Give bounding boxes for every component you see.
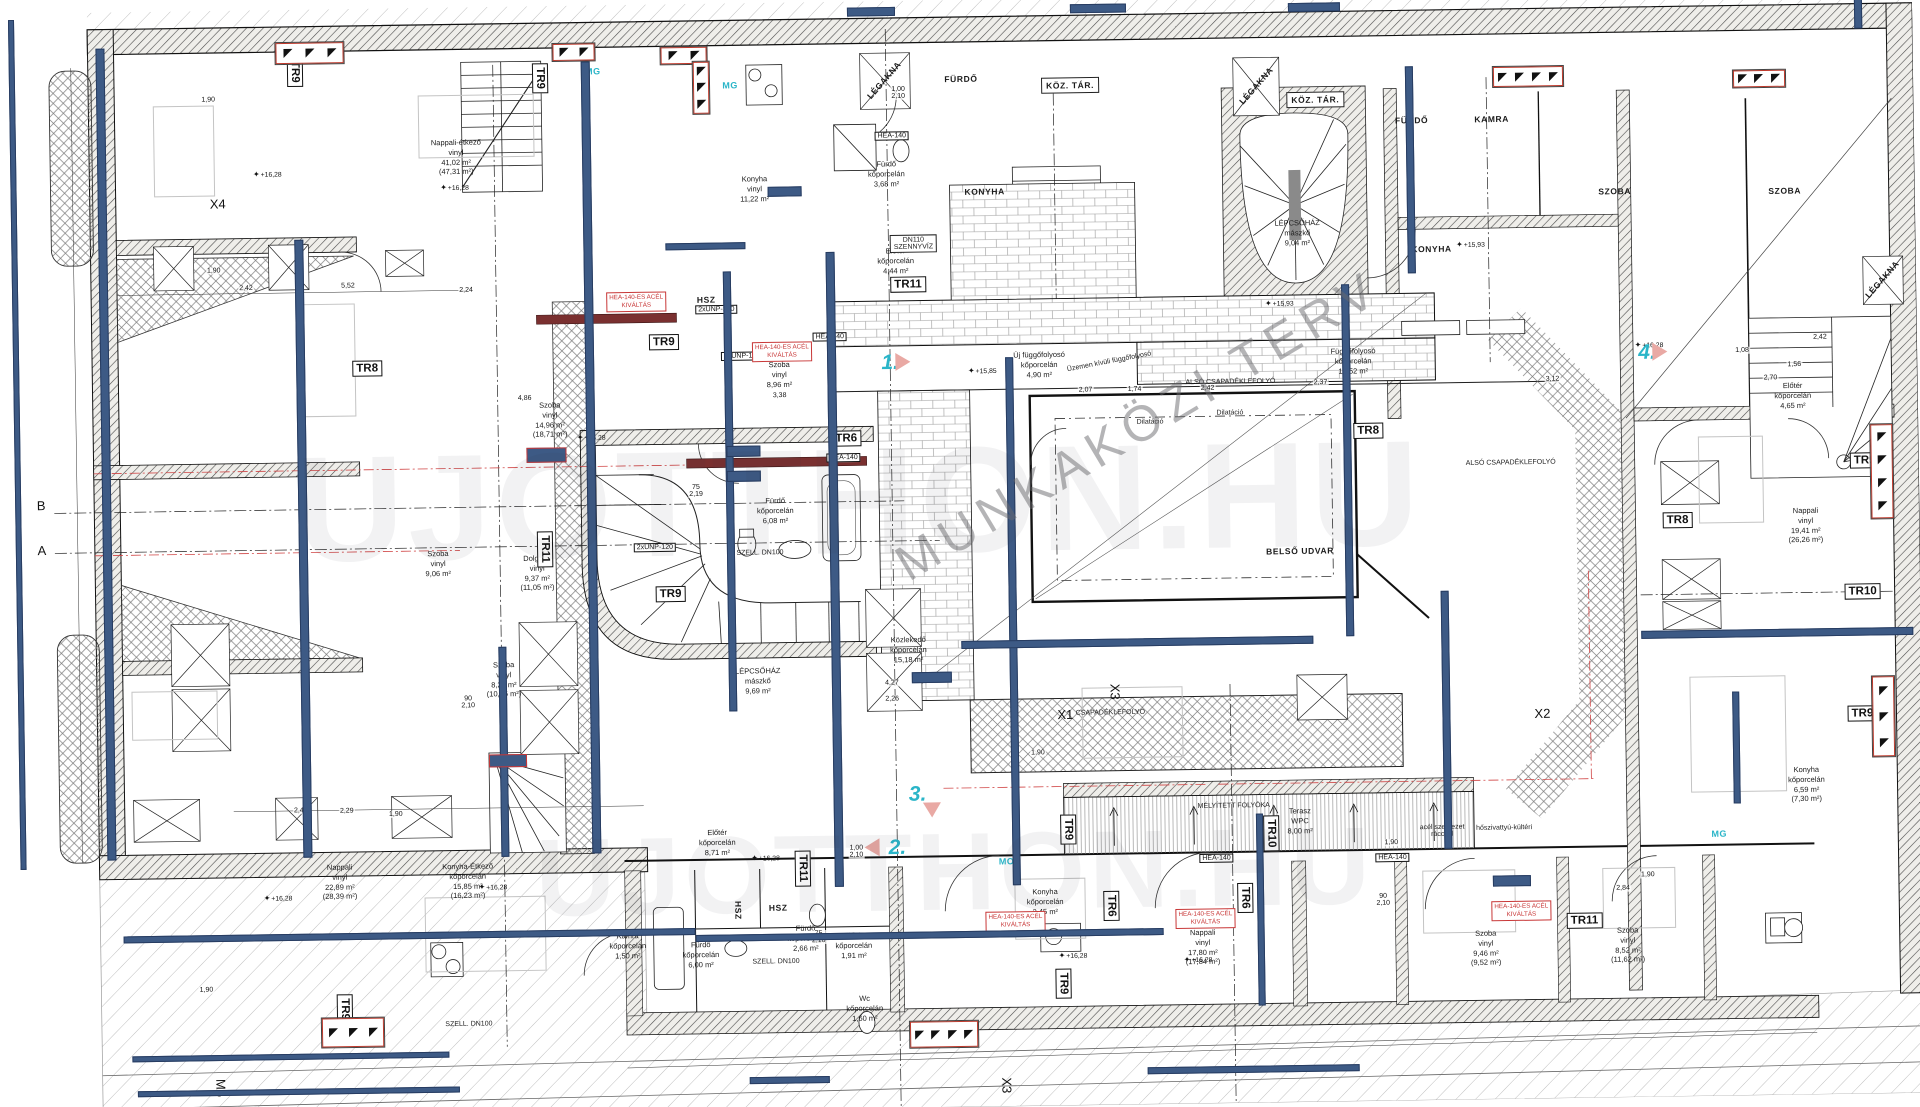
tr-tag: TR9 [531,63,548,93]
steel-beam [8,20,27,870]
glazing-triangle-icon [964,1029,973,1038]
site-watermark-2: UJOTTHON.HU [535,802,1375,941]
glazing-triangle-icon [327,48,336,57]
dimension-text: 1,08 [1734,347,1750,354]
tr-tag: TR8 [1663,512,1693,529]
window [1872,676,1895,756]
room-name: LÉGAKNA [1863,259,1901,300]
glazing-triangle-icon [1879,712,1888,721]
steel-beam [1288,2,1340,12]
axis-label: B [37,498,46,513]
utility-mark: MG [722,80,738,90]
steel-replacement-tag: HEA-140-ES ACÉL KIVÁLTÁS [1491,900,1551,921]
tr-tag: TR11 [890,276,926,293]
steel-beam [1732,691,1741,803]
room-label: Fürdő kőporcelán 6,00 m² [682,940,719,970]
apartment-number: 3. [909,783,927,807]
steel-chip-tag [912,672,952,684]
dimension-text: 1,56 [1786,361,1802,368]
steel-profile-tag: HEA-140 [875,131,910,141]
door-wedge-icon [895,353,910,371]
glazing-triangle-icon [1879,686,1888,695]
apartment-number: 4. [1638,341,1656,365]
room-name: SZOBA [1598,186,1631,196]
steel-chip-tag [768,186,802,197]
tr-tag: TR10 [1844,583,1880,600]
dimension-text: 1,90 [1640,871,1656,878]
window [552,43,594,61]
room-label: Wc kőporcelán 1,60 m² [846,994,883,1024]
axis-label: A [37,543,46,558]
axis-label: X3 [999,1077,1014,1093]
glazing-triangle-icon [579,47,588,56]
tr-tag: TR8 [352,360,382,377]
glazing-triangle-icon [915,1030,924,1039]
window [322,1018,384,1048]
steel-chip-tag [1493,875,1531,887]
room-name: HSZ [697,295,716,305]
room-label: Fürdő kőporcelán 3,68 m² [868,159,905,189]
room-label: Nappali vinyl 19,41 m² (26,26 m²) [1788,506,1823,546]
glazing-triangle-icon [1549,72,1558,81]
room-name: KONYHA [1411,244,1452,255]
steel-beam [1405,66,1416,273]
tr-tag: TR11 [1567,912,1603,929]
room-label: Konyha-Étkező kőporcelán 15,85 m² (16,23… [442,861,493,901]
dimension-text: 2,42 [1812,334,1828,341]
glazing-triangle-icon [931,1030,940,1039]
glazing-triangle-icon [948,1030,957,1039]
annotation: hőszivattyú-kültéri [1476,824,1532,832]
dimension-text: 3,38 [772,392,788,399]
glazing-triangle-icon [1515,72,1524,81]
dimension-text: 2,29 [339,808,355,815]
dimension-text: 2,70 [1763,374,1779,381]
room-label: Konyha vinyl 11,22 m² [740,174,769,204]
window [1733,70,1785,88]
room-name: LÉGAKNA [1237,65,1275,106]
room-label: Szoba vinyl 8,52 m² (11,62 m²) [1611,925,1646,965]
window [1870,424,1893,518]
glazing-triangle-icon [283,49,292,58]
window [910,1021,978,1048]
window [693,62,710,114]
steel-beam [1441,591,1453,849]
annotation: Üzemen kívüli függőfolyosó [1066,350,1151,373]
apartment-number: 1. [881,351,899,375]
glazing-triangle-icon [1878,501,1887,510]
dimension-text: 1,90 [199,987,215,994]
room-label: Nappali-étkező vinyl 41,02 m² (47,31 m²) [431,138,482,178]
door-wedge-icon [1652,342,1667,360]
level-mark: +16,28 [440,183,469,192]
room-label: Függőfolyosó kőporcelán 12,52 m² [1330,346,1375,376]
room-label: Nappali vinyl 22,89 m² (28,39 m²) [322,862,357,902]
room-name: KONYHA [964,186,1005,197]
glazing-triangle-icon [348,1028,357,1037]
glazing-triangle-icon [696,83,705,92]
site-watermark: UJOTTHON.HU [294,407,1424,597]
tr-tag: TR9 [649,334,679,351]
dimension-text: 2,42 [238,285,254,292]
steel-beam [132,1052,449,1063]
steel-beam [1854,0,1863,29]
dimension-text: 1,90 [206,267,222,274]
floor-plan: Nappali-étkező vinyl 41,02 m² (47,31 m²)… [0,0,1920,1107]
tr-tag: TR9 [1055,969,1072,999]
dimension-text: 1,90 [388,811,404,818]
glazing-triangle-icon [1754,74,1763,83]
dimension-text: 1,90 [1030,749,1046,756]
glazing-triangle-icon [305,49,314,58]
steel-chip-tag [489,754,527,768]
dimension-text: 2,37 [1313,379,1329,386]
dimension-text: 2,26 [884,695,900,702]
glazing-triangle-icon [697,100,706,109]
annotation: ALSÓ CSAPADÉKLEFOLYÓ [1466,459,1556,467]
room-name: KAMRA [1474,114,1509,125]
dimension-text: 1,90 [200,96,216,103]
axis-label: X3 [1107,684,1122,700]
utility-mark: MG [1711,829,1727,839]
glazing-triangle-icon [559,48,568,57]
steel-beam [750,1076,830,1084]
level-mark: +16,28 [1184,955,1213,964]
room-label: Szoba vinyl 8,96 m² [766,360,792,390]
steel-beam [95,49,116,861]
dimension-text: 1,00 2,10 [890,86,906,100]
annotation: CSAPADÉKLEFOLYÓ [1076,709,1145,717]
room-name: FÜRDŐ [944,74,977,84]
room-label: Előtér kőporcelán 4,65 m² [1774,381,1811,411]
dimension-text: 2,07 [1078,387,1094,394]
room-label: Közlekedő kőporcelán 15,18 m² [890,635,927,665]
room-label: Konyha kőporcelán 6,59 m² (7,30 m²) [1788,765,1825,805]
annotation: SZELL. DN100 [445,1020,492,1028]
glazing-triangle-icon [1532,72,1541,81]
room-label: LÉPCSŐHÁZ mászkő 9,04 m² [1274,218,1320,248]
level-mark: +16,28 [1059,951,1088,960]
steel-replacement-tag: HEA-140-ES ACÉL KIVÁLTÁS [752,341,812,362]
glazing-triangle-icon [690,51,699,60]
glazing-triangle-icon [1877,455,1886,464]
steel-beam [138,1086,460,1097]
glazing-triangle-icon [368,1028,377,1037]
glazing-triangle-icon [1738,74,1747,83]
glazing-triangle-icon [696,67,705,76]
steel-beam [665,242,745,250]
level-mark: +15,85 [968,366,997,375]
dimension-text: 2,24 [458,287,474,294]
steel-profile-tag: HEA-140 [1375,853,1410,863]
level-mark: +16,28 [264,893,293,902]
glazing-triangle-icon [328,1028,337,1037]
room-name: SZOBA [1768,185,1801,195]
room-name: KÖZ. TÁR. [1286,91,1344,108]
dimension-text: 4,27 [884,679,900,686]
dimension-text: 90 2,10 [1375,893,1391,907]
axis-label: X1 [1057,707,1073,722]
room-label: LÉPCSŐHÁZ mászkő 9,69 m² [735,666,781,696]
dimension-text: 90 2,10 [460,695,476,709]
glazing-triangle-icon [1879,738,1888,747]
axis-label: X2 [1534,706,1550,721]
glazing-triangle-icon [1498,72,1507,81]
window [1493,66,1563,87]
steel-beam [1070,3,1126,13]
glazing-triangle-icon [1877,478,1886,487]
annotation: acél szerkezet ráccsal [1420,824,1465,839]
room-label: Szoba vinyl 9,46 m² (9,52 m²) [1470,929,1501,968]
dimension-text: 4,86 [517,395,533,402]
steel-beam [1641,627,1913,639]
steel-beam [1148,1064,1360,1074]
annotation: SZELL. DN100 [752,958,799,966]
dimension-text: 2,84 [1615,885,1631,892]
annotation: DN110 SZENNYVÍZ [890,234,938,253]
room-name: KÖZ. TÁR. [1041,77,1099,94]
level-mark: +16,28 [253,170,282,179]
room-label: Új függőfolyosó kőporcelán 4,90 m² [1013,350,1065,380]
axis-label: X4 [210,196,226,211]
floorplan-canvas: Nappali-étkező vinyl 41,02 m² (47,31 m²)… [0,0,1920,1107]
glazing-triangle-icon [1877,432,1886,441]
window [275,42,343,64]
dimension-text: 5,52 [340,282,356,289]
glazing-triangle-icon [668,51,677,60]
level-mark: +15,93 [1456,240,1485,249]
steel-replacement-tag: HEA-140-ES ACÉL KIVÁLTÁS [606,291,666,312]
level-mark: +16,28 [478,882,507,891]
glazing-triangle-icon [1771,74,1780,83]
dimension-text: 1,90 [1383,839,1399,846]
dimension-text: 3,12 [1545,376,1561,383]
steel-beam [847,7,895,17]
